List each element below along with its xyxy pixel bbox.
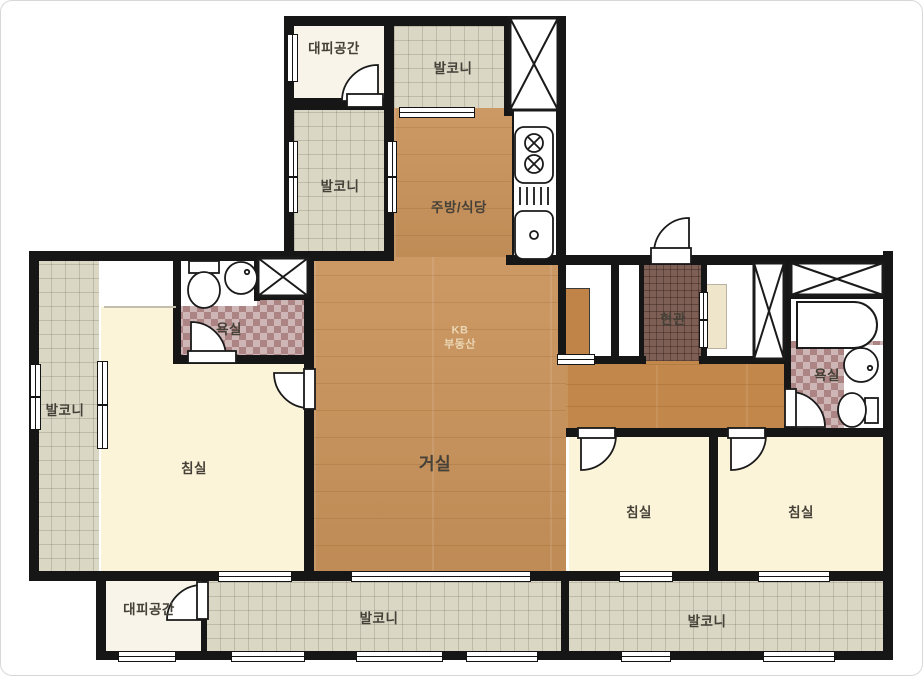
window [351, 571, 531, 582]
hallway-floor [566, 361, 788, 429]
kitchen-floor [394, 108, 514, 263]
room-label-evac-top: 대피공간 [308, 37, 360, 57]
wall-segment [284, 98, 394, 110]
window [399, 107, 475, 118]
wall-segment [561, 579, 569, 653]
wall-segment [639, 263, 644, 361]
wall-segment [173, 355, 308, 364]
bath-right-fixture-niche [844, 345, 885, 433]
window [97, 361, 108, 405]
closet-cabinet [564, 288, 590, 355]
wall-segment [566, 428, 891, 437]
room-label-living: 거실 [419, 450, 451, 475]
wall-segment [556, 16, 566, 265]
window [699, 292, 708, 320]
kitchen-counter [512, 111, 558, 259]
window [288, 141, 298, 177]
wall-segment [558, 255, 566, 359]
window [30, 364, 41, 397]
alcove-divider-line [104, 306, 176, 308]
room-label-bedroom-right: 침실 [788, 501, 814, 521]
window [387, 177, 397, 213]
window [118, 651, 176, 662]
window [619, 571, 673, 582]
window [218, 571, 292, 582]
room-label-balcony-upper-left: 발코니 [321, 175, 360, 195]
wall-segment [259, 295, 309, 300]
bath-left-fixture-niche [179, 256, 257, 306]
window [288, 177, 298, 213]
room-label-bath-right: 욕실 [814, 364, 840, 384]
kb-watermark: KB 부동산 [444, 324, 476, 352]
window [231, 651, 305, 662]
wall-segment [384, 16, 394, 111]
window [287, 34, 298, 82]
wall-segment [699, 356, 791, 364]
bath-right-tub-zone [789, 297, 885, 343]
window [387, 141, 397, 177]
room-label-entrance: 현관 [660, 308, 686, 328]
wall-segment [784, 261, 791, 391]
wall-segment [709, 433, 718, 573]
shoe-cabinet [706, 284, 727, 349]
window [621, 651, 671, 662]
window [466, 651, 538, 662]
room-label-bath-left: 욕실 [216, 318, 242, 338]
wall-segment [784, 425, 791, 435]
window [763, 651, 835, 662]
room-label-kitchen: 주방/식당 [431, 196, 487, 216]
room-label-balcony-bottom-right: 발코니 [688, 610, 727, 630]
room-label-balcony-bottom-left: 발코니 [360, 607, 399, 627]
living-floor [314, 257, 566, 573]
bedroom-left-alcove [101, 257, 176, 307]
room-label-balcony-top: 발코니 [434, 57, 473, 77]
window [758, 571, 830, 582]
wall-segment [201, 579, 207, 653]
window [30, 397, 41, 430]
kb-watermark-line2: 부동산 [444, 338, 476, 352]
wall-segment [96, 571, 106, 659]
wall-segment [611, 263, 619, 361]
kb-watermark-brand: KB [444, 324, 476, 338]
wall-segment [284, 16, 566, 26]
room-label-evac-bottom: 대피공간 [123, 598, 175, 618]
window [699, 320, 708, 348]
window [557, 354, 595, 365]
floor-plan: 대피공간 발코니 발코니 주방/식당 욕실 발코니 침실 거실 현관 욕실 침실… [0, 0, 923, 676]
room-label-bedroom-mid: 침실 [626, 501, 652, 521]
window [356, 651, 443, 662]
room-label-balcony-left: 발코니 [46, 399, 85, 419]
wall-segment [304, 407, 314, 573]
room-label-bedroom-left: 침실 [181, 457, 207, 477]
wall-segment [504, 16, 514, 116]
wall-segment [29, 251, 394, 261]
wall-segment [883, 251, 893, 660]
window [97, 405, 108, 449]
wall-segment [791, 293, 883, 299]
